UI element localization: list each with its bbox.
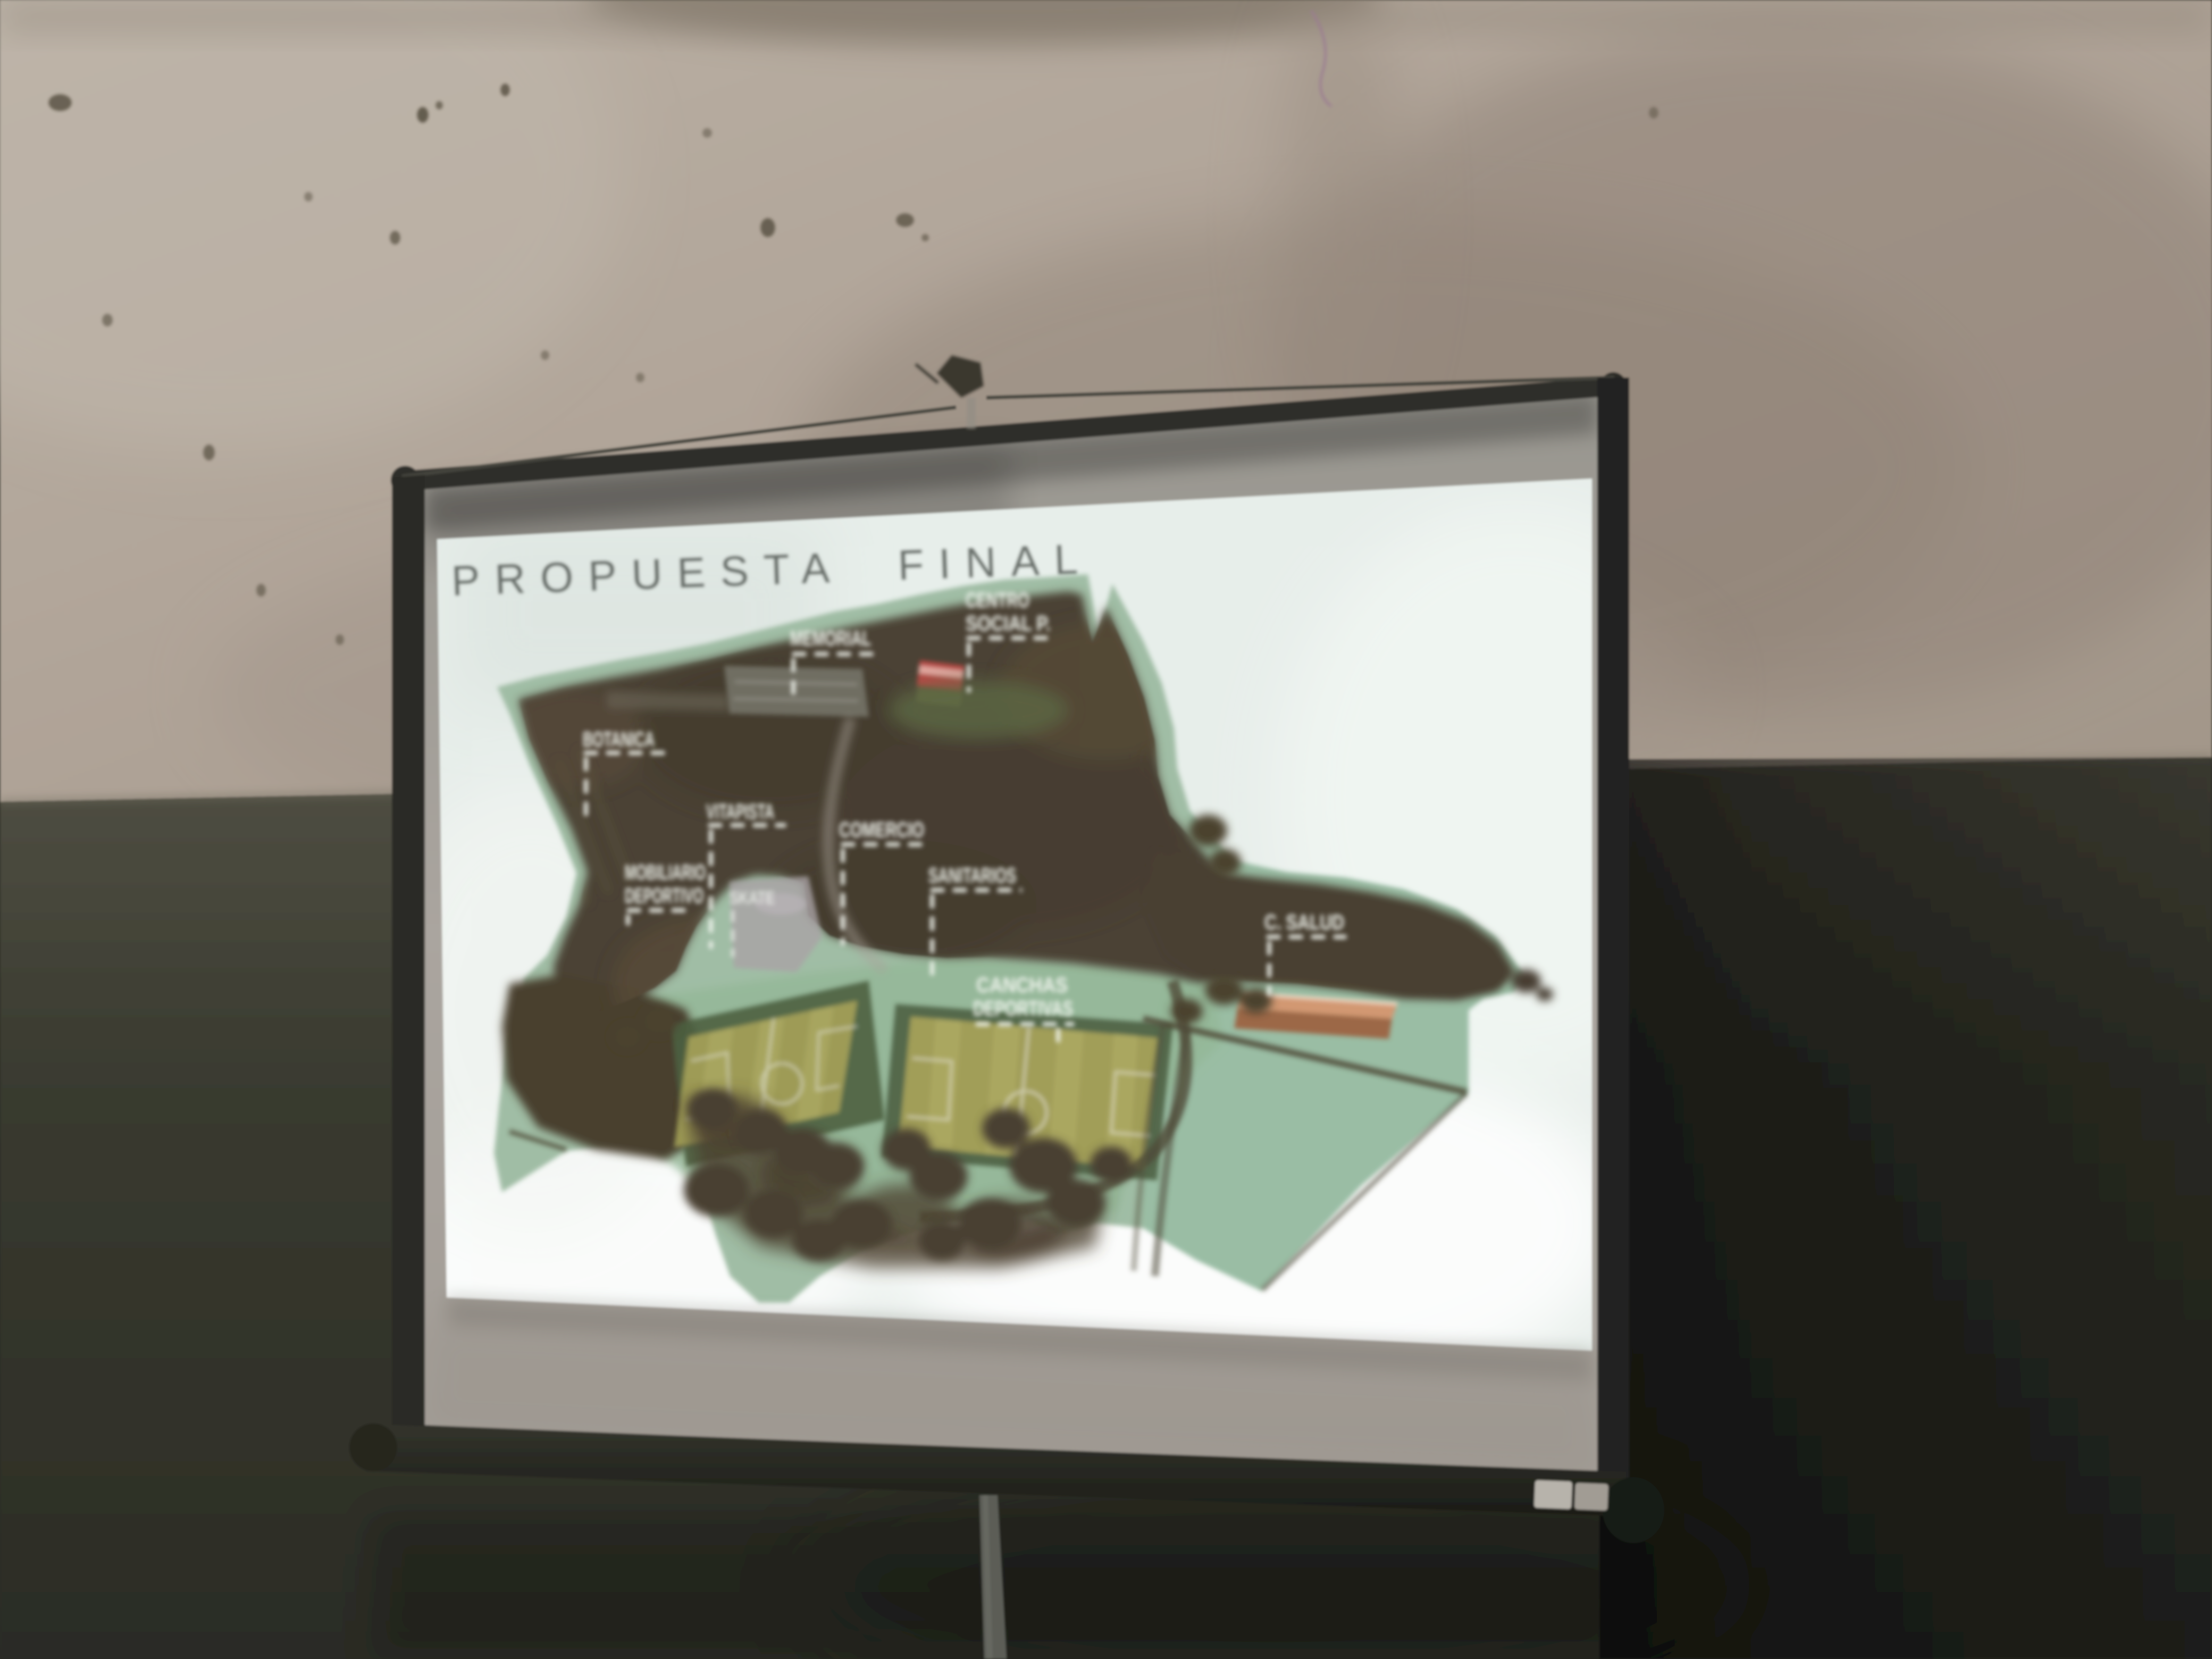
svg-text:DEPORTIVO: DEPORTIVO [625, 884, 703, 908]
svg-text:MEMORIAL: MEMORIAL [790, 627, 871, 650]
svg-text:MOBILIARIO: MOBILIARIO [625, 861, 706, 884]
svg-text:VITAPISTA: VITAPISTA [706, 800, 774, 824]
svg-text:CANCHAS: CANCHAS [976, 974, 1068, 997]
svg-text:BOTANICA: BOTANICA [583, 728, 655, 751]
svg-text:SOCIAL P.: SOCIAL P. [966, 612, 1051, 635]
svg-text:C. SALUD: C. SALUD [1264, 911, 1344, 934]
svg-text:SKATE: SKATE [730, 888, 775, 908]
svg-text:DEPORTIVAS: DEPORTIVAS [973, 997, 1073, 1020]
svg-text:SANITARIOS: SANITARIOS [928, 864, 1016, 887]
svg-text:CENTRO: CENTRO [966, 589, 1029, 612]
svg-text:COMERCIO: COMERCIO [839, 818, 924, 842]
